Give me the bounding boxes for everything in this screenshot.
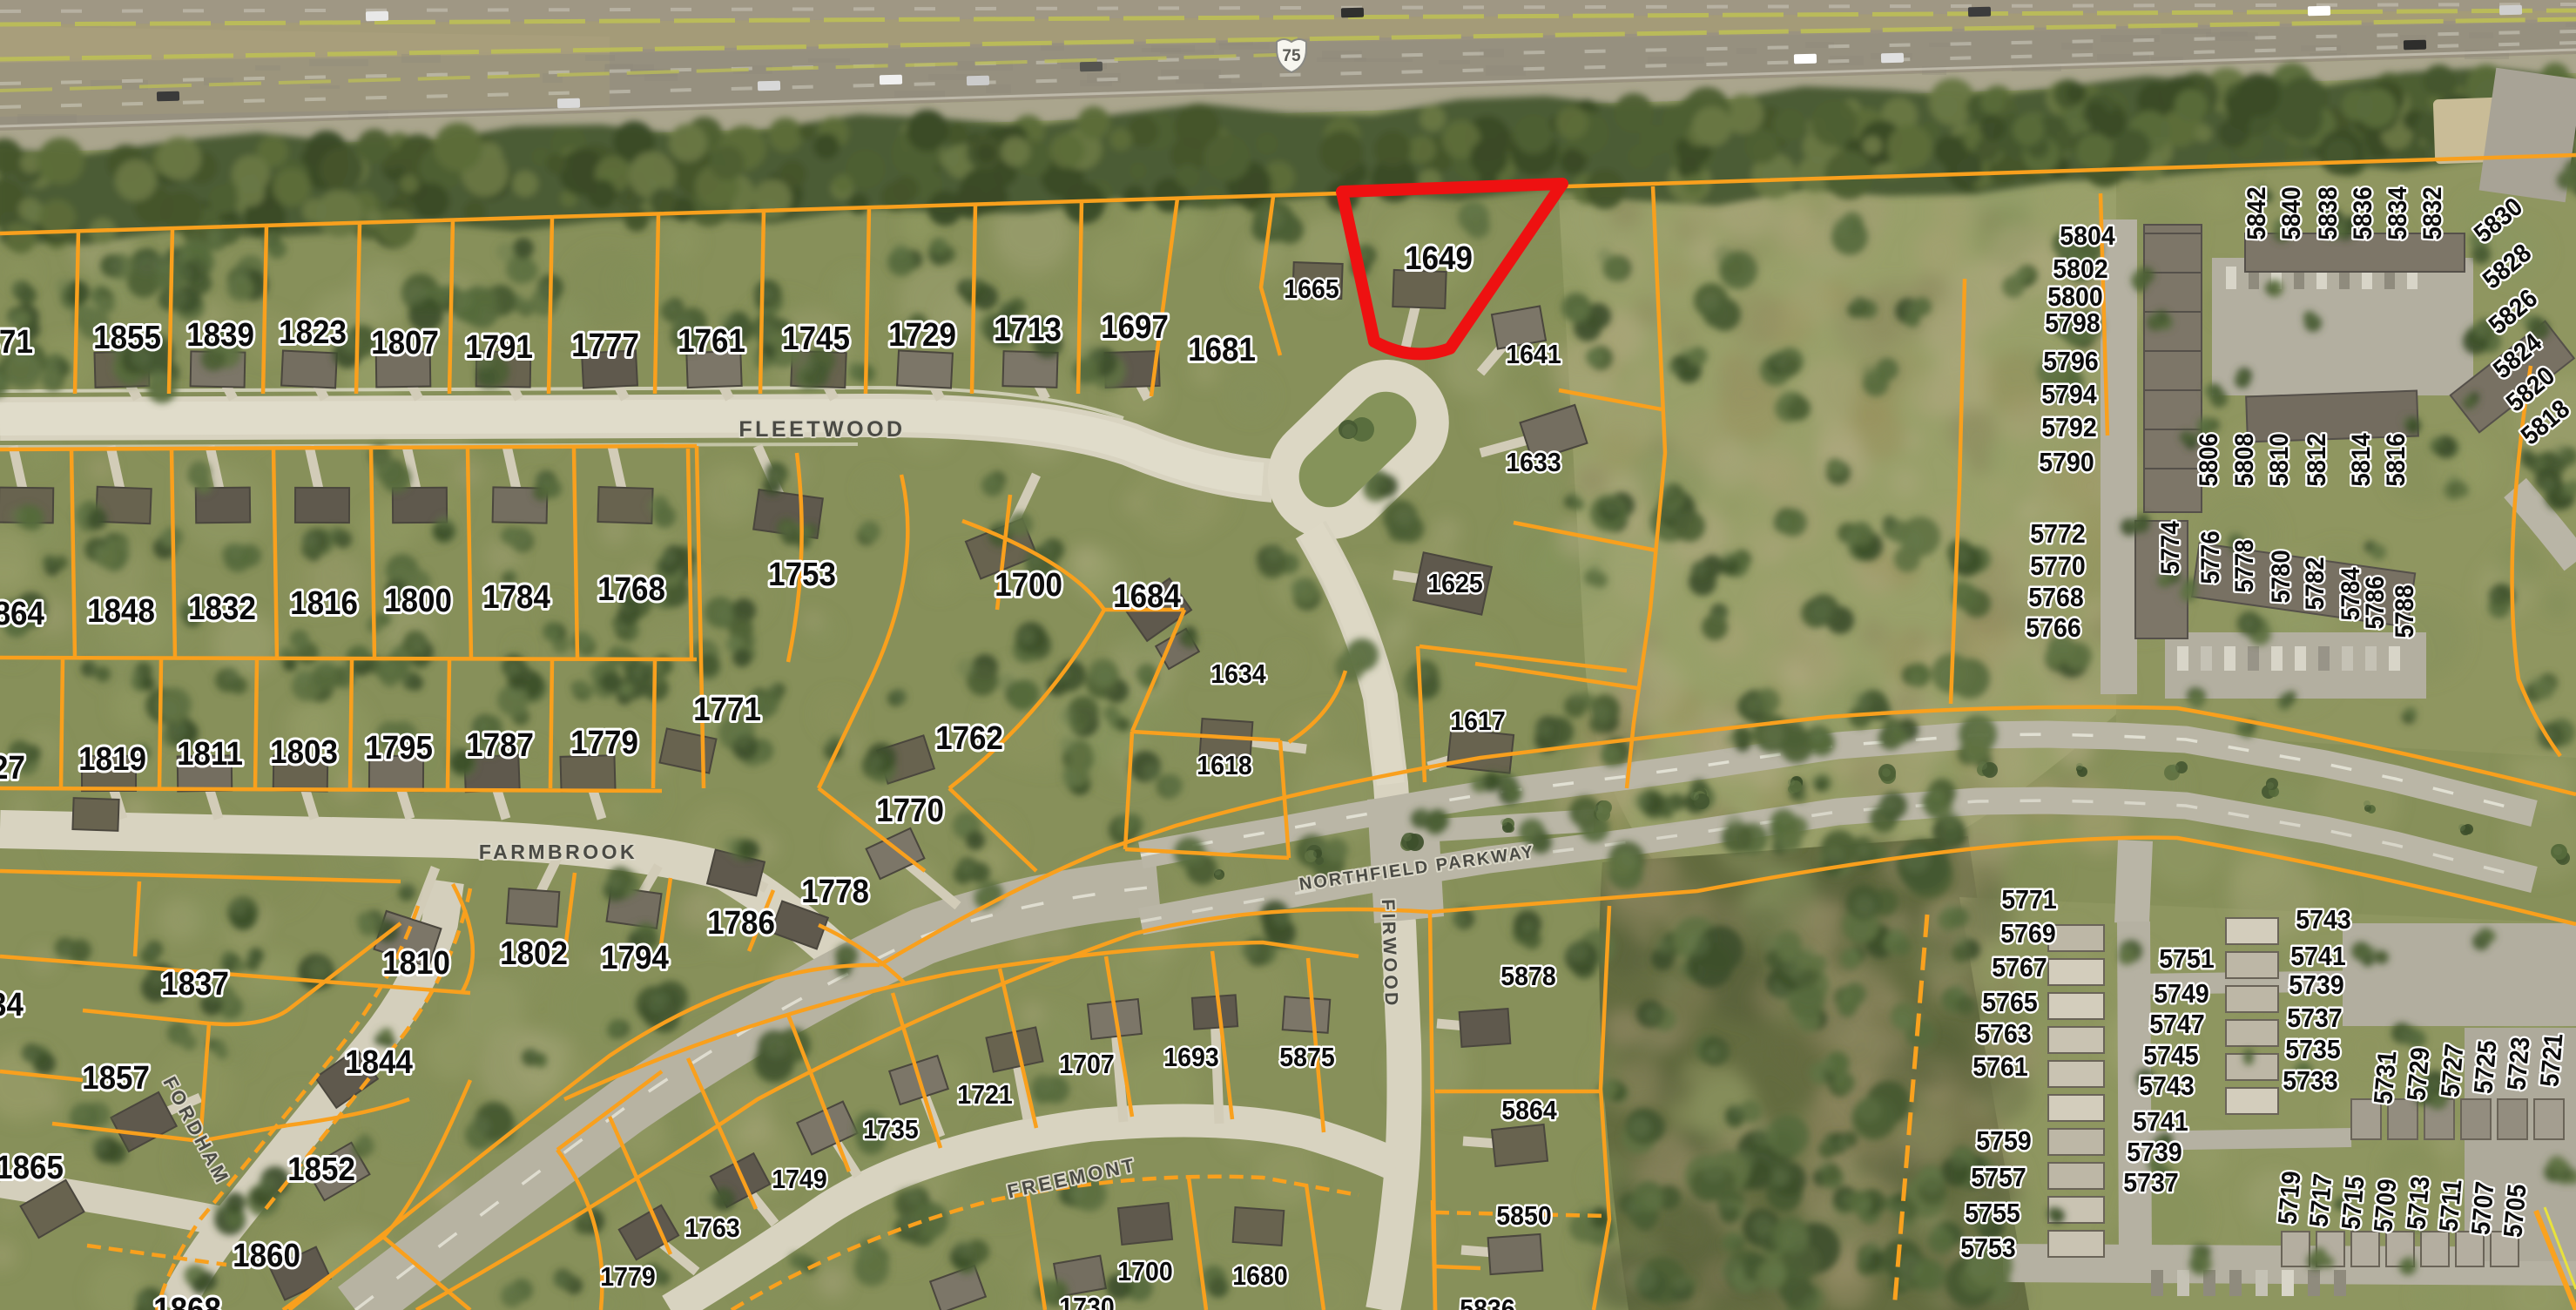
svg-text:5741: 5741 (2133, 1107, 2188, 1137)
svg-text:1633: 1633 (1506, 448, 1561, 477)
svg-text:5733: 5733 (2283, 1066, 2337, 1096)
svg-text:5772: 5772 (2030, 519, 2085, 549)
svg-text:5804: 5804 (2060, 221, 2115, 251)
svg-text:5766: 5766 (2026, 613, 2080, 643)
svg-text:5812: 5812 (2303, 433, 2331, 486)
svg-text:5713: 5713 (2402, 1175, 2436, 1231)
svg-text:1855: 1855 (93, 319, 161, 356)
svg-text:1753: 1753 (768, 556, 836, 593)
svg-text:1791: 1791 (465, 328, 533, 366)
svg-text:5808: 5808 (2230, 433, 2259, 486)
svg-text:1865: 1865 (0, 1149, 64, 1186)
svg-text:5875: 5875 (1279, 1043, 1334, 1072)
svg-text:1745: 1745 (782, 320, 850, 357)
svg-text:5761: 5761 (1972, 1052, 2027, 1082)
svg-text:5707: 5707 (2466, 1180, 2500, 1236)
svg-text:1749: 1749 (772, 1165, 826, 1194)
svg-text:5776: 5776 (2196, 530, 2225, 584)
svg-text:5806: 5806 (2195, 433, 2223, 486)
svg-text:1819: 1819 (78, 740, 146, 778)
svg-text:1771: 1771 (693, 691, 761, 728)
svg-text:1617: 1617 (1450, 706, 1505, 736)
svg-text:1641: 1641 (1506, 340, 1561, 369)
svg-text:5741: 5741 (2290, 942, 2345, 971)
svg-text:5709: 5709 (2369, 1178, 2403, 1233)
svg-text:1784: 1784 (482, 578, 550, 616)
svg-text:1807: 1807 (371, 324, 439, 361)
svg-text:1794: 1794 (601, 939, 669, 976)
svg-text:5816: 5816 (2382, 433, 2411, 486)
svg-text:5715: 5715 (2337, 1175, 2370, 1231)
svg-text:1816: 1816 (290, 584, 358, 622)
svg-text:5878: 5878 (1500, 962, 1555, 991)
svg-text:1860: 1860 (233, 1237, 300, 1274)
svg-text:1868: 1868 (153, 1291, 221, 1310)
svg-text:5735: 5735 (2285, 1035, 2340, 1064)
svg-text:1857: 1857 (82, 1059, 150, 1097)
svg-text:5842: 5842 (2242, 186, 2271, 240)
svg-text:1837: 1837 (161, 965, 229, 1003)
svg-text:5757: 5757 (1971, 1163, 2026, 1192)
svg-text:1839: 1839 (186, 316, 254, 354)
svg-text:5788: 5788 (2391, 584, 2419, 638)
svg-text:5705: 5705 (2498, 1183, 2532, 1239)
svg-text:1823: 1823 (279, 314, 347, 351)
svg-text:1811: 1811 (177, 735, 243, 773)
svg-text:5751: 5751 (2159, 944, 2214, 974)
svg-text:5749: 5749 (2154, 979, 2208, 1009)
svg-text:5743: 5743 (2139, 1071, 2194, 1101)
svg-text:1713: 1713 (994, 311, 1062, 348)
svg-text:5717: 5717 (2304, 1172, 2338, 1228)
svg-text:1681: 1681 (1188, 331, 1256, 368)
svg-text:1834: 1834 (0, 986, 24, 1023)
svg-text:1649: 1649 (1405, 240, 1473, 277)
svg-text:5786: 5786 (2361, 576, 2390, 629)
svg-text:1800: 1800 (384, 582, 452, 619)
svg-text:5767: 5767 (1992, 953, 2047, 982)
svg-text:5864: 5864 (1501, 1096, 1557, 1125)
svg-text:1735: 1735 (863, 1115, 918, 1145)
svg-text:1761: 1761 (678, 322, 745, 360)
svg-text:1618: 1618 (1197, 751, 1251, 780)
svg-text:5790: 5790 (2039, 448, 2094, 477)
svg-text:5745: 5745 (2143, 1041, 2198, 1070)
svg-text:1777: 1777 (571, 327, 639, 364)
svg-text:1634: 1634 (1210, 659, 1266, 689)
svg-text:1762: 1762 (935, 719, 1003, 757)
svg-text:5727: 5727 (2436, 1043, 2470, 1098)
svg-text:1786: 1786 (707, 904, 775, 942)
svg-text:1787: 1787 (466, 726, 534, 764)
svg-text:1721: 1721 (957, 1080, 1012, 1110)
svg-text:FIRWOOD: FIRWOOD (1378, 899, 1401, 1009)
svg-text:5832: 5832 (2418, 186, 2447, 240)
svg-text:5737: 5737 (2287, 1003, 2342, 1033)
svg-text:5850: 5850 (1496, 1201, 1551, 1231)
svg-text:5725: 5725 (2469, 1039, 2503, 1095)
svg-text:1852: 1852 (287, 1151, 355, 1188)
svg-text:1779: 1779 (570, 724, 638, 761)
svg-text:FARMBROOK: FARMBROOK (479, 841, 637, 863)
svg-text:1707: 1707 (1059, 1050, 1114, 1079)
svg-text:5753: 5753 (1960, 1233, 2015, 1263)
svg-text:5721: 5721 (2535, 1032, 2569, 1088)
svg-text:1665: 1665 (1284, 274, 1339, 304)
svg-text:5810: 5810 (2265, 433, 2294, 486)
svg-text:1684: 1684 (1113, 577, 1181, 615)
svg-text:1832: 1832 (188, 590, 256, 627)
svg-text:1844: 1844 (345, 1043, 413, 1081)
svg-text:1768: 1768 (597, 571, 665, 608)
svg-text:5794: 5794 (2041, 380, 2097, 409)
svg-text:5765: 5765 (1982, 988, 2037, 1017)
svg-text:5838: 5838 (2314, 186, 2343, 240)
svg-text:5768: 5768 (2028, 583, 2083, 612)
svg-text:5836: 5836 (2349, 186, 2377, 240)
svg-text:5719: 5719 (2273, 1170, 2307, 1226)
svg-text:5731: 5731 (2369, 1050, 2403, 1105)
svg-text:5802: 5802 (2053, 254, 2107, 284)
svg-text:5739: 5739 (2127, 1138, 2182, 1167)
svg-text:5743: 5743 (2296, 905, 2350, 935)
svg-text:5755: 5755 (1965, 1199, 2020, 1228)
svg-text:5840: 5840 (2277, 186, 2306, 240)
svg-text:5759: 5759 (1976, 1126, 2031, 1156)
svg-text:1697: 1697 (1101, 308, 1169, 346)
svg-text:1778: 1778 (801, 873, 869, 910)
svg-text:1730: 1730 (1059, 1293, 1114, 1310)
svg-text:1795: 1795 (365, 729, 433, 766)
svg-text:1700: 1700 (995, 566, 1062, 604)
svg-text:1871: 1871 (0, 323, 33, 361)
svg-text:1810: 1810 (382, 944, 450, 982)
svg-text:5771: 5771 (2001, 885, 2056, 915)
svg-text:5782: 5782 (2301, 557, 2330, 610)
svg-text:75: 75 (1282, 47, 1301, 65)
svg-text:5723: 5723 (2502, 1036, 2536, 1091)
svg-text:5774: 5774 (2156, 521, 2185, 574)
svg-text:1729: 1729 (888, 316, 956, 354)
svg-text:1680: 1680 (1232, 1261, 1287, 1291)
svg-text:1700: 1700 (1117, 1257, 1172, 1286)
svg-text:5747: 5747 (2149, 1010, 2204, 1039)
svg-text:5737: 5737 (2123, 1168, 2178, 1198)
svg-text:1770: 1770 (876, 792, 944, 829)
svg-text:5798: 5798 (2045, 308, 2100, 338)
svg-text:5814: 5814 (2347, 433, 2376, 486)
svg-text:1802: 1802 (500, 935, 568, 972)
svg-text:FLEETWOOD: FLEETWOOD (738, 417, 905, 442)
svg-text:5778: 5778 (2230, 539, 2259, 592)
svg-text:1779: 1779 (600, 1262, 655, 1292)
svg-text:5711: 5711 (2434, 1178, 2467, 1233)
svg-text:5834: 5834 (2384, 186, 2412, 240)
svg-text:1693: 1693 (1163, 1043, 1218, 1072)
svg-text:5739: 5739 (2289, 970, 2343, 1000)
svg-text:5796: 5796 (2043, 347, 2098, 376)
svg-text:5729: 5729 (2402, 1046, 2436, 1102)
svg-text:5769: 5769 (2000, 919, 2055, 949)
svg-text:5770: 5770 (2030, 551, 2085, 581)
svg-text:5836: 5836 (1460, 1294, 1514, 1310)
svg-text:5780: 5780 (2267, 550, 2296, 603)
svg-text:1625: 1625 (1427, 569, 1482, 598)
svg-text:1864: 1864 (0, 595, 45, 632)
svg-text:1848: 1848 (87, 592, 155, 630)
svg-text:1803: 1803 (270, 733, 338, 771)
svg-text:5792: 5792 (2041, 413, 2096, 442)
svg-text:1827: 1827 (0, 749, 25, 787)
svg-text:5763: 5763 (1976, 1019, 2031, 1049)
svg-text:1763: 1763 (684, 1213, 739, 1243)
